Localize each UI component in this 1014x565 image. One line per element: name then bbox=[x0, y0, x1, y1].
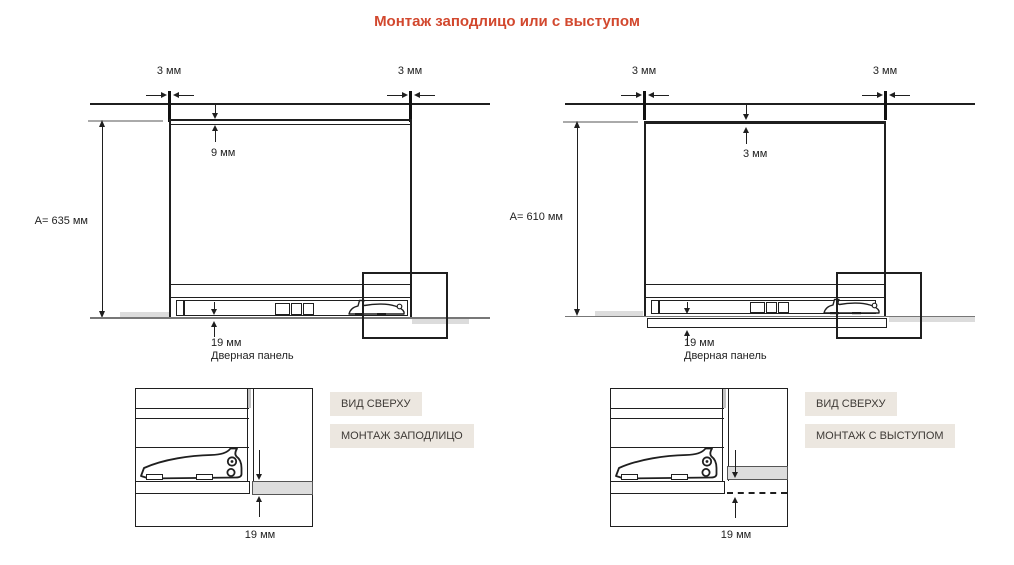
right-detail-door-panel bbox=[610, 481, 725, 494]
arrow-up-icon bbox=[210, 321, 219, 337]
right-detail-dashed-line bbox=[727, 492, 787, 494]
arrow-down-icon bbox=[255, 450, 264, 480]
arrow-left-icon bbox=[414, 91, 435, 100]
right-box-top-line bbox=[644, 121, 886, 124]
left-dim-3mm-left: 3 мм bbox=[145, 65, 193, 77]
left-detail-foot bbox=[196, 474, 213, 480]
arrow-down-icon bbox=[731, 450, 740, 478]
left-tick-right bbox=[409, 91, 412, 122]
arrow-left-icon bbox=[173, 91, 194, 100]
right-panel-caption: Дверная панель bbox=[684, 350, 767, 362]
left-detail-foot bbox=[146, 474, 163, 480]
left-dim-top-gap: 9 мм bbox=[211, 147, 235, 159]
right-detail-line bbox=[611, 408, 724, 409]
arrow-down-icon bbox=[683, 302, 692, 314]
left-detail-gap-gray bbox=[248, 389, 251, 408]
left-vent-slot bbox=[291, 303, 302, 316]
arrow-down-icon bbox=[210, 302, 219, 315]
left-detail-door-panel bbox=[135, 481, 250, 494]
left-height-dimension-line bbox=[98, 120, 107, 318]
right-dim-3mm-left: 3 мм bbox=[620, 65, 668, 77]
right-tick-left bbox=[643, 91, 646, 120]
right-box-left-edge bbox=[644, 121, 646, 316]
right-detail-line bbox=[611, 418, 724, 419]
arrow-left-icon bbox=[648, 91, 669, 100]
left-countertop-line bbox=[90, 103, 490, 105]
arrow-left-icon bbox=[889, 91, 910, 100]
left-floor-gray-left bbox=[120, 312, 169, 317]
left-box-left-edge bbox=[169, 119, 171, 318]
right-countertop-line bbox=[565, 103, 975, 105]
left-vent-slot bbox=[303, 303, 314, 316]
right-detail-gap-gray bbox=[723, 389, 726, 408]
right-tick-right bbox=[884, 91, 887, 120]
left-dim-3mm-right: 3 мм bbox=[386, 65, 434, 77]
arrow-up-icon bbox=[211, 125, 220, 142]
left-tick-left bbox=[168, 91, 171, 122]
right-dim-height: A= 610 мм bbox=[491, 211, 563, 223]
right-floor-gray-left bbox=[595, 311, 643, 316]
right-detail-callout-box bbox=[836, 272, 922, 339]
right-dim-3mm-right: 3 мм bbox=[861, 65, 909, 77]
arrow-right-icon bbox=[387, 91, 408, 100]
left-vent-slot bbox=[275, 303, 290, 316]
arrow-right-icon bbox=[146, 91, 167, 100]
right-detail-foot bbox=[671, 474, 688, 480]
arrow-right-icon bbox=[862, 91, 883, 100]
left-box-top-line bbox=[169, 119, 412, 121]
arrow-up-icon bbox=[742, 127, 751, 144]
right-detail-foot bbox=[621, 474, 638, 480]
left-mount-tag: МОНТАЖ ЗАПОДЛИЦО bbox=[330, 424, 474, 448]
arrow-right-icon bbox=[621, 91, 642, 100]
left-detail-callout-box bbox=[362, 272, 448, 339]
right-plinth-divider bbox=[658, 301, 660, 313]
right-vent-slot bbox=[778, 302, 789, 313]
right-detail-dim: 19 мм bbox=[711, 529, 761, 541]
arrow-down-icon bbox=[742, 104, 751, 120]
left-dim-panel: 19 мм bbox=[211, 337, 241, 349]
left-plinth-divider bbox=[183, 301, 185, 315]
left-detail-line bbox=[136, 418, 249, 419]
left-detail-dim: 19 мм bbox=[235, 529, 285, 541]
left-view-tag: ВИД СВЕРХУ bbox=[330, 392, 422, 416]
page-title: Монтаж заподлицо или с выступом bbox=[0, 13, 1014, 30]
left-panel-caption: Дверная панель bbox=[211, 350, 294, 362]
arrow-down-icon bbox=[211, 104, 220, 119]
right-mount-tag: МОНТАЖ С ВЫСТУПОМ bbox=[805, 424, 955, 448]
right-dim-panel: 19 мм bbox=[684, 337, 714, 349]
right-height-dimension-line bbox=[573, 121, 582, 316]
installation-diagram-page: Монтаж заподлицо или с выступом 3 мм 3 м… bbox=[0, 0, 1014, 565]
right-dim-top-gap: 3 мм bbox=[743, 148, 767, 160]
right-vent-slot bbox=[766, 302, 777, 313]
arrow-up-icon bbox=[255, 496, 264, 517]
arrow-up-icon bbox=[731, 497, 740, 518]
left-box-top-line2 bbox=[171, 124, 410, 125]
left-detail-line bbox=[136, 408, 249, 409]
right-view-tag: ВИД СВЕРХУ bbox=[805, 392, 897, 416]
right-vent-slot bbox=[750, 302, 765, 313]
left-dim-height: A= 635 мм bbox=[16, 215, 88, 227]
left-detail-furniture-panel bbox=[252, 481, 313, 495]
